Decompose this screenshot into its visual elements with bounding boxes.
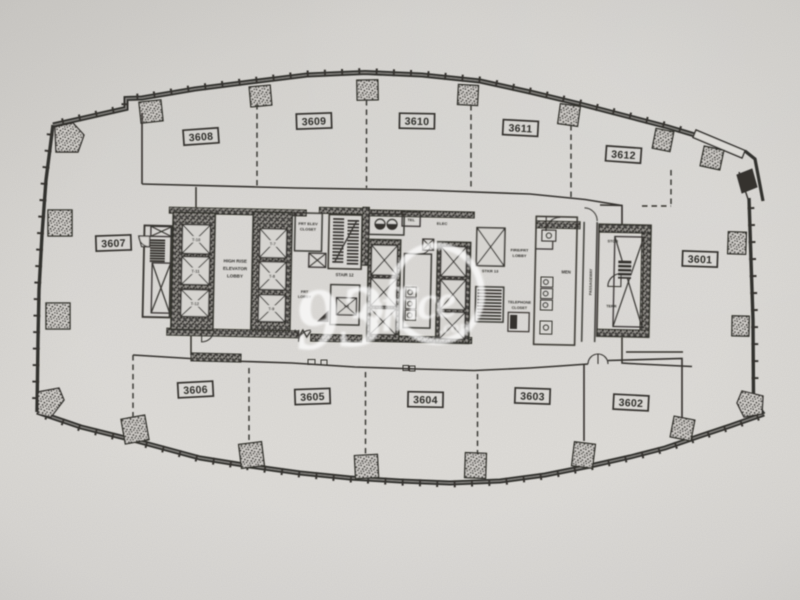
svg-text:TERR: TERR <box>606 304 617 308</box>
svg-text:3605: 3605 <box>300 391 325 404</box>
svg-text:LOBBY: LOBBY <box>227 273 243 278</box>
svg-text:TEL: TEL <box>407 217 415 222</box>
svg-text:3609: 3609 <box>302 115 327 128</box>
svg-text:3602: 3602 <box>618 397 643 410</box>
svg-text:3608: 3608 <box>188 131 213 145</box>
svg-text:T-7: T-7 <box>270 241 277 246</box>
svg-text:3612: 3612 <box>611 149 636 163</box>
svg-text:CLOSET: CLOSET <box>512 306 528 310</box>
svg-text:TELEPHONE: TELEPHONE <box>508 300 532 304</box>
svg-text:3604: 3604 <box>413 394 438 406</box>
svg-text:3601: 3601 <box>687 253 712 266</box>
svg-text:3606: 3606 <box>183 384 208 397</box>
svg-text:.com: .com <box>438 316 473 337</box>
svg-text:MEN: MEN <box>561 269 570 274</box>
svg-text:LOBBY: LOBBY <box>512 253 526 258</box>
svg-text:HIGH RISE: HIGH RISE <box>223 258 247 263</box>
svg-text:PASSAGEWAY: PASSAGEWAY <box>589 268 594 295</box>
svg-text:3611: 3611 <box>508 122 533 135</box>
svg-text:T-12: T-12 <box>191 301 200 306</box>
svg-text:ELEVATOR: ELEVATOR <box>223 266 248 272</box>
svg-text:3610: 3610 <box>405 116 430 128</box>
svg-text:ELEC: ELEC <box>437 221 448 226</box>
svg-text:STOR: STOR <box>607 239 618 243</box>
svg-text:3603: 3603 <box>520 390 545 403</box>
svg-text:CLOSET: CLOSET <box>300 226 317 231</box>
svg-text:T-10: T-10 <box>192 237 201 242</box>
svg-text:T-11: T-11 <box>191 268 200 273</box>
svg-text:STKR 13: STKR 13 <box>482 268 499 273</box>
svg-text:3607: 3607 <box>101 237 126 250</box>
svg-text:T-9: T-9 <box>268 306 275 311</box>
svg-text:T-8: T-8 <box>269 274 276 279</box>
